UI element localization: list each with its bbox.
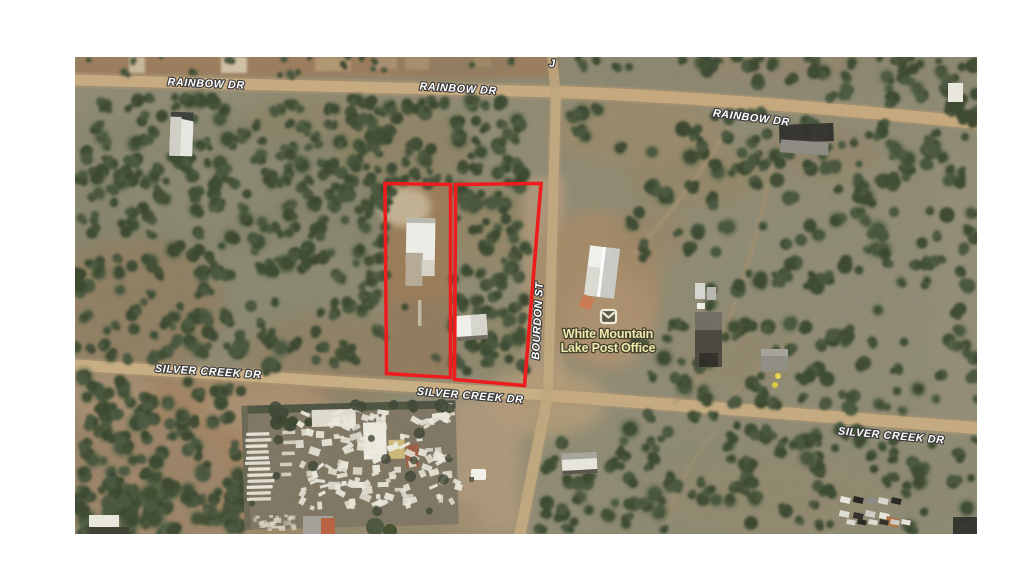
svg-text:White Mountain: White Mountain [563, 327, 653, 341]
svg-text:Lake Post Office: Lake Post Office [561, 341, 656, 355]
svg-text:J: J [549, 58, 556, 70]
